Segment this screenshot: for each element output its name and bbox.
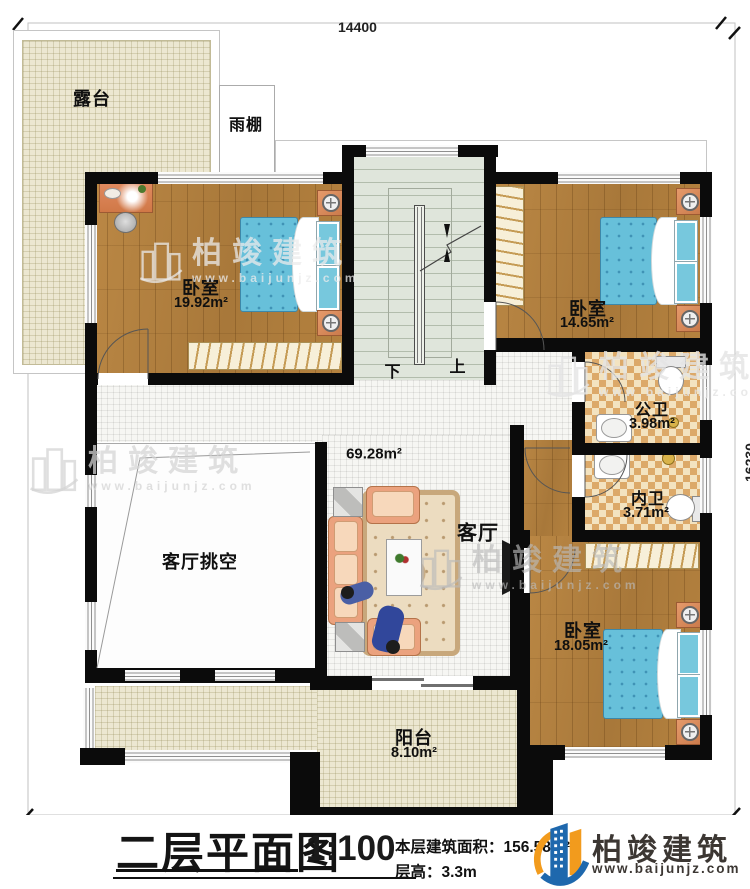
dimension-right: 16230 bbox=[742, 422, 750, 482]
hat-icon bbox=[104, 188, 121, 199]
wall-segment bbox=[342, 145, 354, 385]
scale-label: 1:100 bbox=[306, 829, 396, 869]
wall-segment bbox=[85, 385, 97, 475]
bed-mattress-icon bbox=[600, 217, 657, 305]
window bbox=[700, 365, 712, 420]
bed-pillow-icon bbox=[675, 221, 697, 262]
wall-segment bbox=[85, 172, 97, 225]
nightstand-icon bbox=[676, 188, 703, 215]
wall-segment bbox=[80, 748, 125, 765]
room-area-bedroom3: 18.05m² bbox=[554, 638, 608, 654]
wall-segment bbox=[572, 530, 712, 542]
room-area-living: 69.28m² bbox=[346, 446, 402, 463]
person-head-icon bbox=[341, 586, 354, 599]
chair-icon bbox=[114, 212, 137, 233]
wall-segment bbox=[85, 650, 97, 683]
room-label-canopy: 雨棚 bbox=[229, 111, 263, 135]
bed-pillow-icon bbox=[317, 266, 339, 310]
window bbox=[700, 458, 712, 513]
bed-pillow-icon bbox=[675, 262, 697, 303]
window bbox=[85, 602, 97, 650]
side-table-icon bbox=[333, 487, 363, 517]
balcony-floor-band bbox=[95, 686, 317, 750]
hall-floor-east bbox=[496, 350, 572, 445]
room-area-ensuite-bath: 3.71m² bbox=[623, 505, 669, 521]
toilet-icon bbox=[658, 366, 684, 395]
window bbox=[83, 688, 95, 748]
company-logo-icon bbox=[531, 819, 589, 887]
wall-segment bbox=[148, 373, 354, 385]
bed-pillow-icon bbox=[678, 675, 700, 717]
wall-segment bbox=[496, 338, 712, 352]
bed-mattress-icon bbox=[603, 629, 663, 719]
watermark-logo-icon bbox=[28, 443, 80, 495]
room-area-bedroom1: 19.92m² bbox=[174, 295, 228, 311]
room-label-living-void: 客厅挑空 bbox=[162, 548, 238, 574]
bed-sheet-icon bbox=[651, 217, 677, 305]
bed-pillow-icon bbox=[317, 222, 339, 266]
wall-segment bbox=[700, 303, 712, 365]
window bbox=[85, 225, 97, 323]
wall-segment bbox=[315, 442, 327, 676]
wall-segment bbox=[517, 676, 530, 761]
wall-segment bbox=[484, 350, 496, 385]
window bbox=[700, 630, 712, 715]
wall-segment bbox=[665, 745, 712, 760]
plant-icon bbox=[138, 185, 146, 193]
title-block: 二层平面图 1:100 本层建筑面积：156.58m² 层高：3.3m 柏竣建筑… bbox=[0, 815, 750, 889]
wall-segment bbox=[510, 425, 524, 676]
bed-sheet-icon bbox=[292, 217, 319, 312]
room-area-balcony: 8.10m² bbox=[391, 745, 437, 761]
nightstand-icon bbox=[317, 190, 345, 216]
stairs-down-label: 下 bbox=[384, 358, 401, 382]
nightstand-icon bbox=[317, 310, 345, 336]
room-label-living: 客厅 bbox=[457, 517, 499, 546]
floor-height-label: 层高：3.3m bbox=[395, 860, 477, 882]
window bbox=[700, 217, 712, 303]
nightstand-icon bbox=[676, 305, 703, 332]
sofa-cushion-icon bbox=[334, 521, 358, 552]
room-label-terrace: 露台 bbox=[73, 85, 111, 111]
window bbox=[125, 670, 180, 681]
window bbox=[158, 172, 323, 184]
stair-handrail bbox=[414, 205, 425, 365]
bed-mattress-icon bbox=[240, 217, 298, 312]
sofa-cushion-icon bbox=[334, 554, 358, 585]
window bbox=[366, 145, 458, 157]
room-area-bedroom2: 14.65m² bbox=[560, 315, 614, 331]
wardrobe-icon bbox=[585, 543, 699, 569]
floor-plan: 14400 16230 bbox=[0, 0, 750, 889]
window bbox=[215, 670, 275, 681]
wardrobe-icon bbox=[494, 186, 524, 306]
armchair-cushion-icon bbox=[372, 491, 414, 517]
wall-segment bbox=[85, 507, 97, 602]
door-opening bbox=[484, 302, 496, 350]
person-head-icon bbox=[386, 640, 400, 654]
window bbox=[558, 172, 680, 184]
side-table-icon bbox=[335, 622, 365, 652]
sink-icon bbox=[594, 451, 630, 479]
sliding-door bbox=[372, 676, 473, 690]
window bbox=[85, 475, 97, 507]
door-opening bbox=[572, 455, 585, 497]
dimension-top: 14400 bbox=[338, 19, 377, 35]
wall-segment bbox=[572, 352, 585, 362]
title-underline-thin bbox=[113, 877, 416, 879]
wall-segment bbox=[572, 443, 712, 455]
wall-segment bbox=[85, 373, 98, 385]
railing bbox=[125, 750, 290, 763]
sink-icon bbox=[596, 414, 632, 442]
title-underline bbox=[116, 869, 298, 872]
wardrobe-icon bbox=[188, 342, 342, 370]
wall-segment bbox=[496, 172, 558, 184]
coffee-table-icon bbox=[386, 539, 422, 596]
toilet-icon bbox=[666, 494, 695, 521]
bed-pillow-icon bbox=[678, 633, 700, 675]
stairs-up-label: 上 bbox=[449, 353, 466, 377]
flowers-icon bbox=[394, 552, 410, 566]
room-area-public-bath: 3.98m² bbox=[629, 416, 675, 432]
wall-segment bbox=[85, 668, 327, 683]
window bbox=[565, 747, 665, 758]
company-url: www.baijunjz.com bbox=[592, 861, 741, 876]
wall-segment bbox=[484, 145, 496, 302]
door-opening bbox=[572, 362, 585, 402]
wall-segment bbox=[700, 172, 712, 217]
door-opening bbox=[98, 373, 148, 385]
